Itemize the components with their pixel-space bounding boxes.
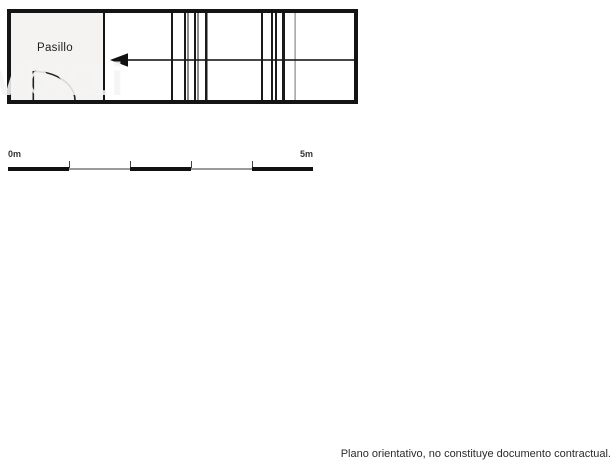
scale-start-label: 0m xyxy=(8,149,21,159)
scale-bar: 0m 5m xyxy=(8,148,313,174)
stair-treads-group-2 xyxy=(261,13,296,100)
door-swing xyxy=(33,71,76,100)
door-swing-arc xyxy=(35,72,76,101)
room-label-pasillo: Pasillo xyxy=(37,42,73,54)
plan-page: Pasillo vbx1i 0m 5m Plano orientativo, n… xyxy=(0,0,616,472)
disclaimer-text: Plano orientativo, no constituye documen… xyxy=(341,448,611,460)
scale-segment-thin xyxy=(191,168,252,170)
scale-segment-solid xyxy=(130,167,191,171)
plan-drawing xyxy=(11,13,354,100)
floor-plan: Pasillo xyxy=(7,9,358,104)
arrow-head-left-icon xyxy=(110,53,128,67)
room-divider-wall xyxy=(103,13,105,100)
scale-segment-solid xyxy=(252,167,313,171)
direction-arrow xyxy=(110,53,354,67)
door-leaf xyxy=(33,71,35,100)
scale-end-label: 5m xyxy=(300,149,313,159)
scale-segment-solid xyxy=(8,167,69,171)
stair-treads-group-1 xyxy=(171,13,208,100)
scale-segment-thin xyxy=(69,168,130,170)
